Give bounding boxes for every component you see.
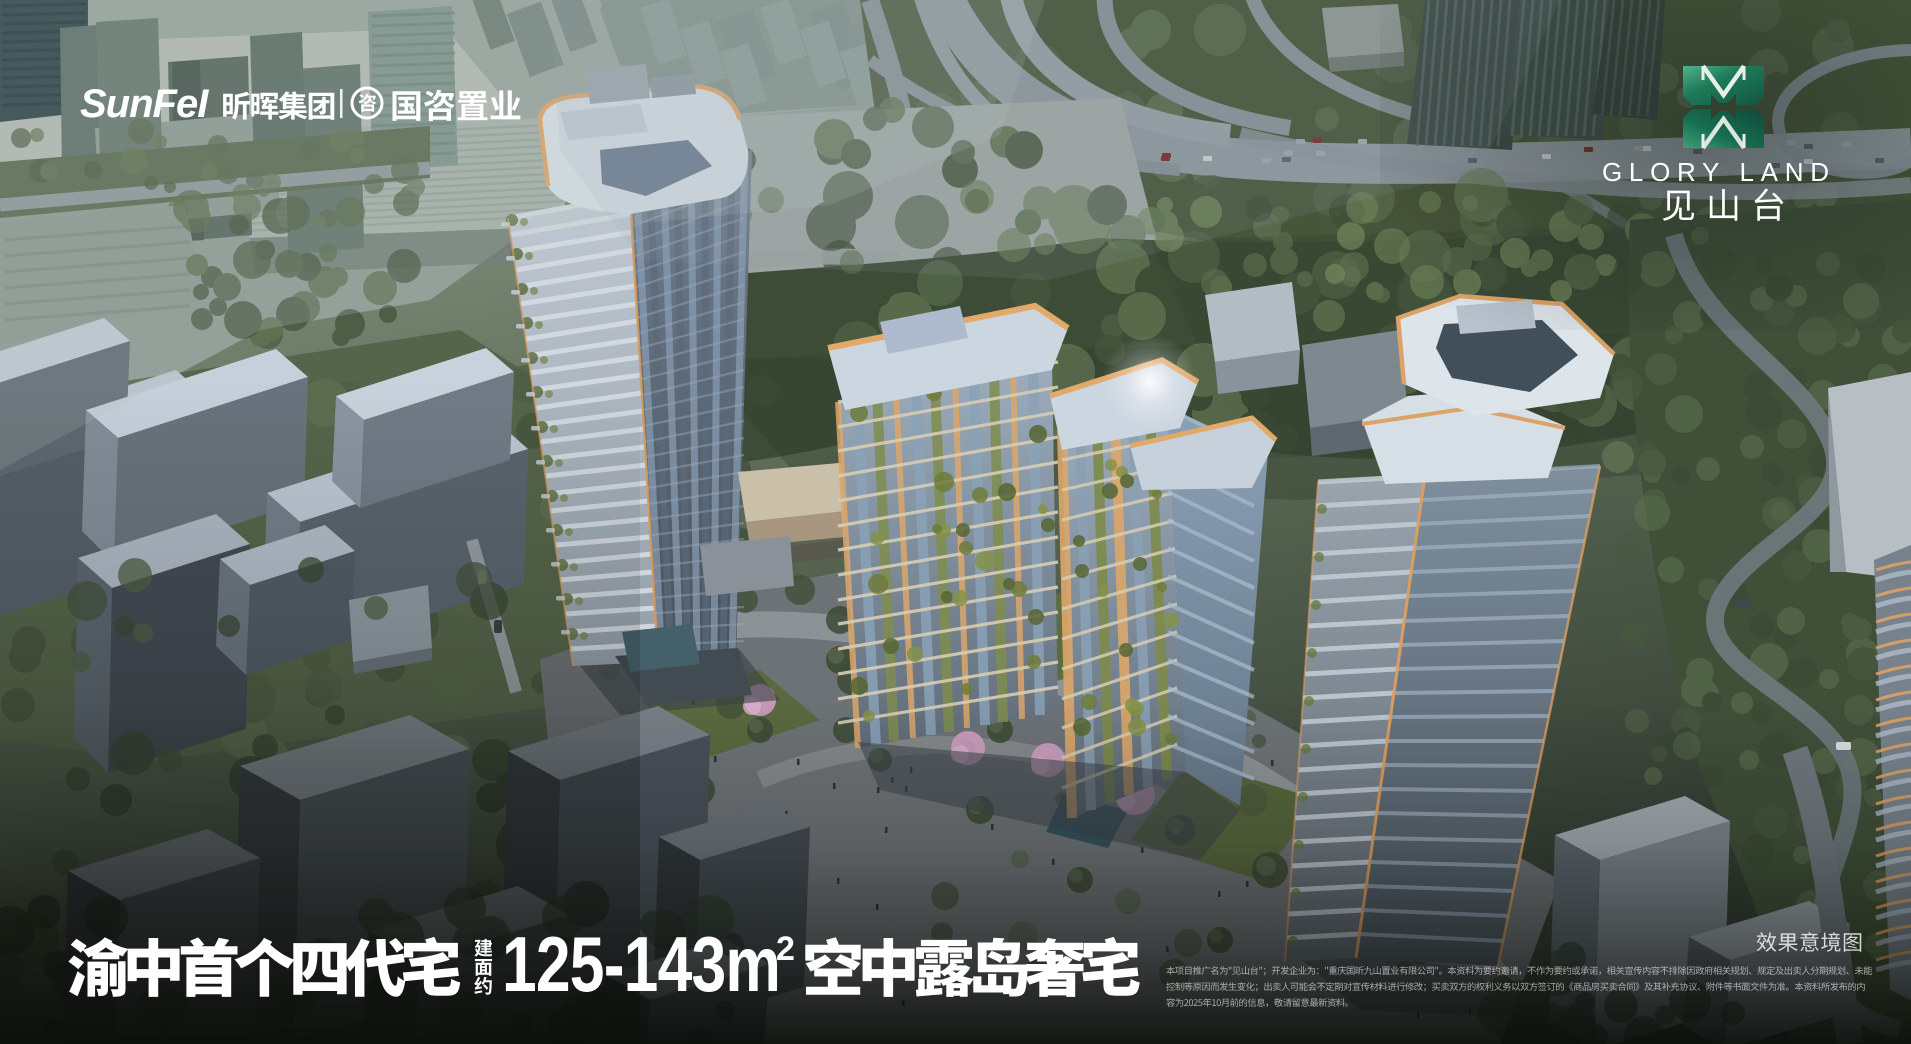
svg-text:125-143m: 125-143m	[502, 920, 780, 1007]
svg-text:GLORY LAND: GLORY LAND	[1602, 157, 1836, 187]
svg-text:2: 2	[776, 930, 795, 968]
svg-text:SunFeI: SunFeI	[80, 82, 209, 126]
